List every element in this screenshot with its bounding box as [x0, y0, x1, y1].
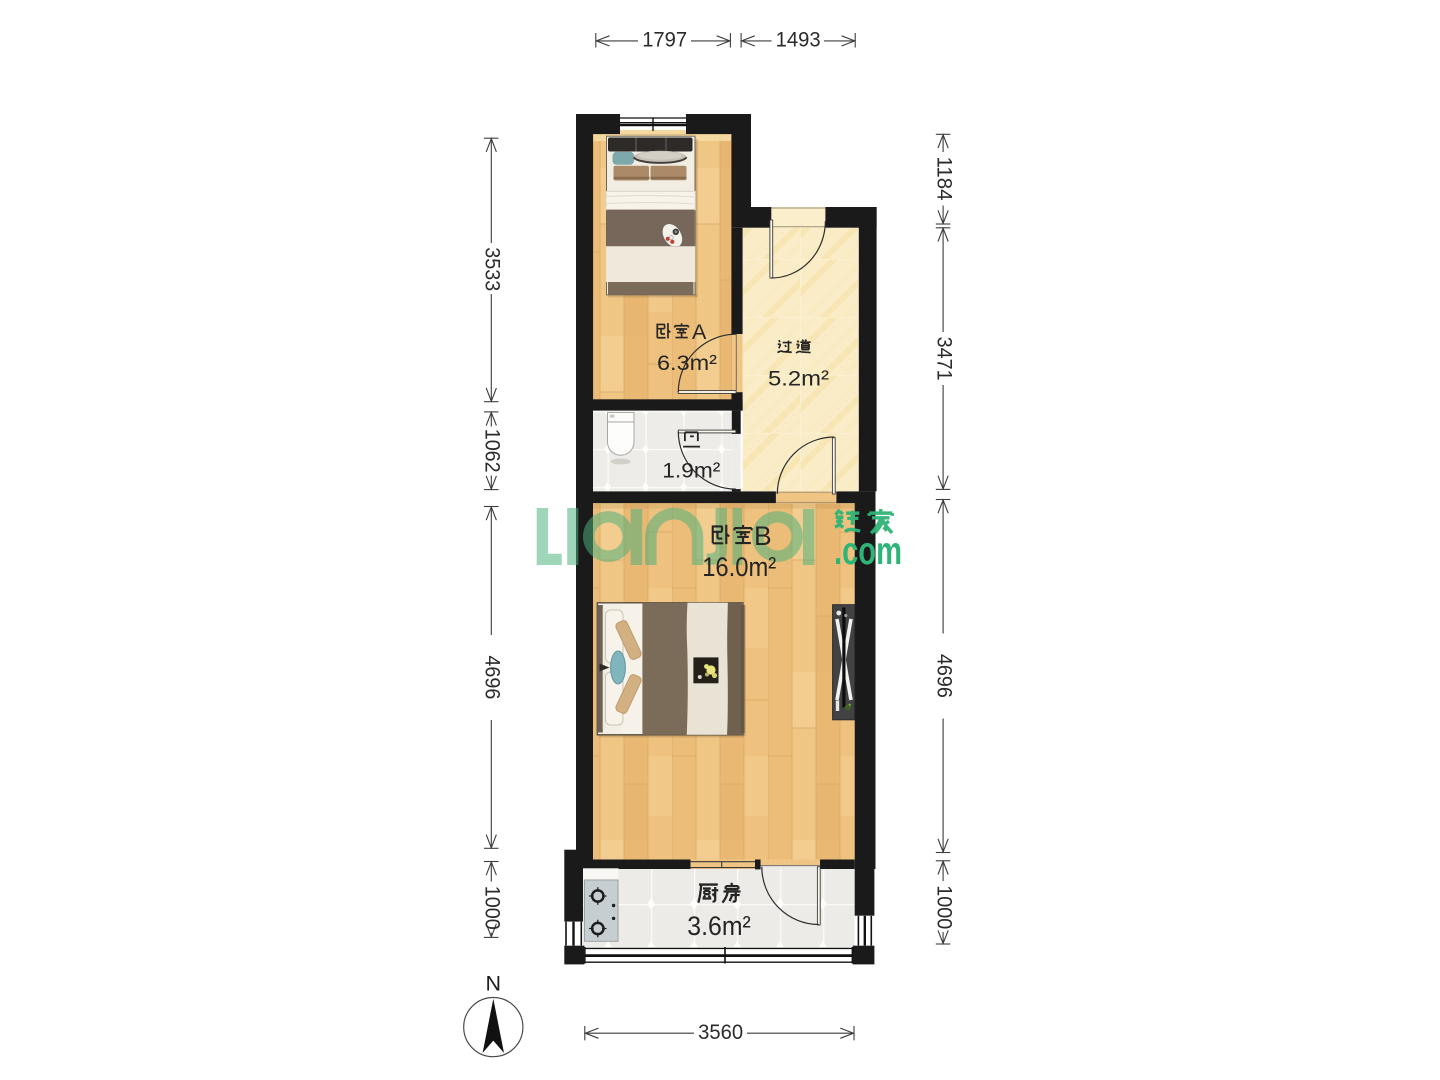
svg-text:1493: 1493 — [776, 28, 821, 52]
svg-text:1062: 1062 — [480, 429, 504, 473]
svg-text:B: B — [754, 521, 772, 551]
svg-text:3.6m²: 3.6m² — [687, 911, 751, 941]
svg-text:4696: 4696 — [933, 654, 957, 698]
svg-text:1000: 1000 — [933, 885, 957, 929]
svg-text:N: N — [486, 971, 502, 995]
svg-text:3471: 3471 — [933, 337, 957, 381]
svg-text:.com: .com — [834, 530, 902, 573]
svg-text:5.2m²: 5.2m² — [768, 367, 829, 391]
svg-text:1000: 1000 — [480, 886, 504, 930]
svg-text:4696: 4696 — [480, 655, 504, 699]
svg-text:3533: 3533 — [480, 247, 504, 291]
svg-text:1797: 1797 — [642, 28, 687, 52]
svg-text:1184: 1184 — [933, 157, 957, 201]
svg-text:16.0m²: 16.0m² — [702, 552, 776, 582]
svg-text:1.9m²: 1.9m² — [662, 459, 720, 483]
svg-text:A: A — [692, 320, 707, 344]
svg-text:6.3m²: 6.3m² — [657, 351, 717, 375]
svg-text:3560: 3560 — [698, 1020, 743, 1044]
